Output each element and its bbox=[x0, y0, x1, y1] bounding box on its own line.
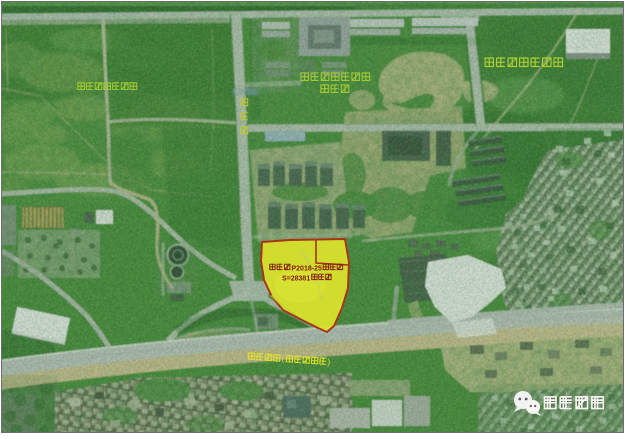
svg-text:S=28381: S=28381 bbox=[282, 276, 310, 283]
svg-text:P2018-25: P2018-25 bbox=[292, 266, 322, 273]
